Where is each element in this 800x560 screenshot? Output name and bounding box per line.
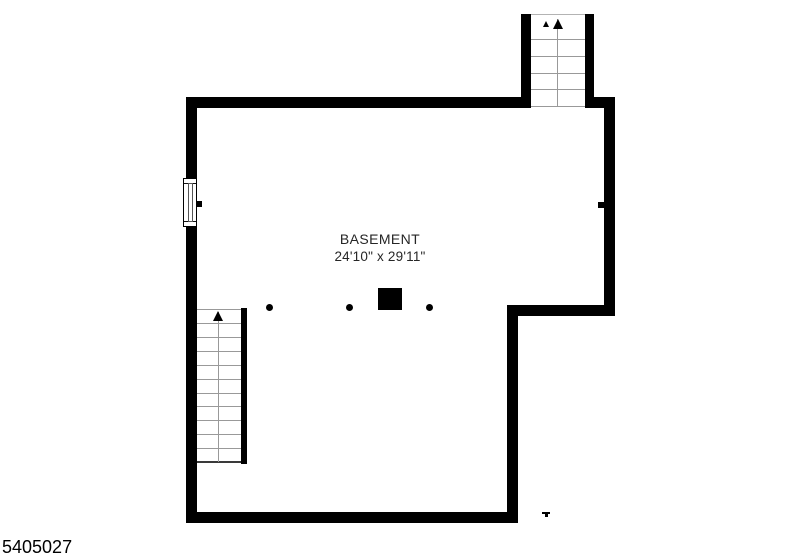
stair-tread-line [531, 106, 585, 107]
stair-tread-line [197, 351, 241, 352]
floorplan-canvas: BASEMENT 24'10" x 29'11" 5405027 [0, 0, 800, 560]
stair-tread-line [197, 323, 241, 324]
stair-tread-line [531, 56, 585, 57]
listing-id: 5405027 [2, 537, 72, 557]
notch-vertical-wall [507, 305, 518, 523]
bottom-tick-mark [542, 512, 550, 518]
room-name: BASEMENT [280, 232, 480, 247]
support-column-dot [346, 304, 353, 311]
bottom-wall [186, 512, 518, 523]
right-wall-tick-mark [598, 202, 604, 208]
stair-tread-line [197, 420, 241, 421]
bottom-tick-stem [545, 514, 548, 517]
stair-tread-line [197, 393, 241, 394]
support-column-dot [426, 304, 433, 311]
lower-staircase-bottom-edge [197, 461, 241, 463]
stair-tread-line [197, 337, 241, 338]
stair-tread-line [531, 89, 585, 90]
window-pane [188, 183, 193, 222]
room-dimensions: 24'10" x 29'11" [280, 249, 480, 264]
upper-stairwell-left-wall [521, 14, 531, 108]
room-label: BASEMENT 24'10" x 29'11" [280, 232, 480, 264]
window-tick-mark [197, 201, 202, 207]
window-symbol [183, 178, 197, 227]
support-column-row [266, 304, 436, 312]
right-wall [604, 97, 615, 316]
stair-tread-line [531, 39, 585, 40]
upper-stairwell-top-edge [531, 14, 585, 15]
stair-tread-line [531, 73, 585, 74]
stair-tread-line [197, 448, 241, 449]
upper-stairwell [531, 14, 585, 107]
up-arrow-icon [553, 19, 563, 29]
top-wall-left-segment [186, 97, 521, 108]
up-arrow-small-icon [543, 21, 549, 27]
up-arrow-icon [213, 311, 223, 321]
stair-tread-line [197, 365, 241, 366]
lower-staircase-top-edge [197, 309, 241, 310]
stair-tread-line [197, 379, 241, 380]
upper-stairwell-centerline [557, 19, 558, 107]
stair-tread-line [197, 406, 241, 407]
support-post-square [378, 288, 402, 310]
notch-horizontal-wall [507, 305, 615, 316]
support-column-dot [266, 304, 273, 311]
upper-stairwell-right-wall [585, 14, 594, 108]
lower-staircase [197, 309, 241, 463]
lower-staircase-centerline [218, 312, 219, 462]
stair-tread-line [197, 434, 241, 435]
lower-staircase-rail [241, 308, 247, 464]
left-wall [186, 97, 197, 523]
